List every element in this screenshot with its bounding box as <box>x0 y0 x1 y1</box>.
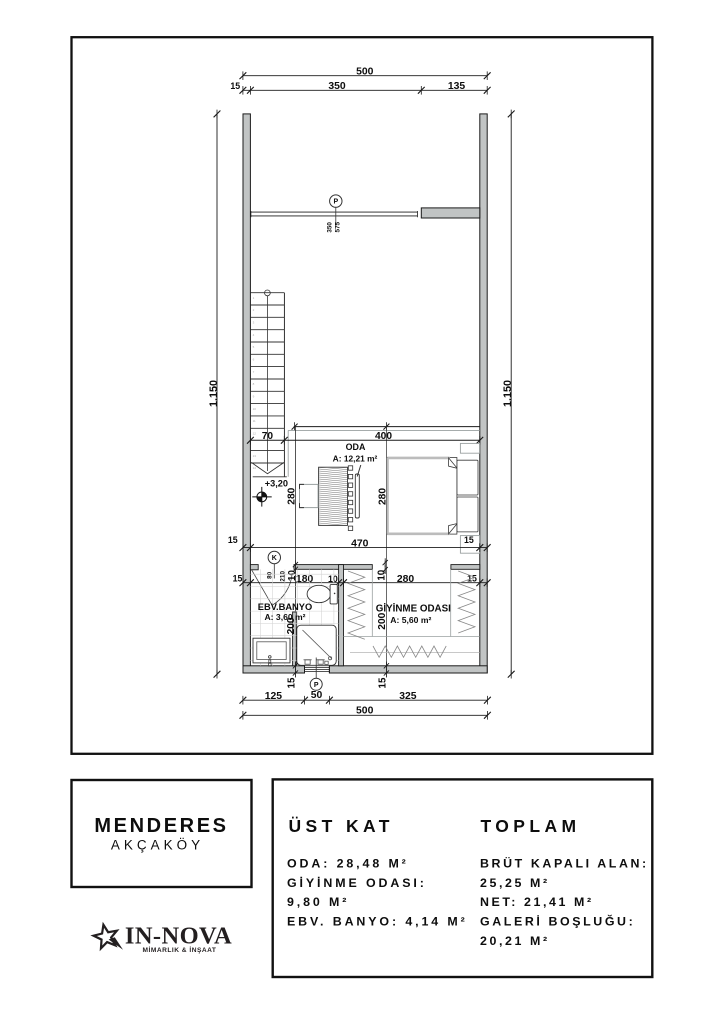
svg-text:10: 10 <box>377 569 388 580</box>
svg-text:1.150: 1.150 <box>208 380 220 407</box>
svg-text:70: 70 <box>262 431 274 442</box>
svg-text:180: 180 <box>296 574 314 585</box>
svg-text:NET: 21,41 M²: NET: 21,41 M² <box>480 895 594 909</box>
svg-text:15: 15 <box>233 574 243 584</box>
svg-text:AKÇAKÖY: AKÇAKÖY <box>111 838 204 853</box>
svg-text:EBV. BANYO: 4,14 M²: EBV. BANYO: 4,14 M² <box>287 915 468 929</box>
svg-text:400: 400 <box>375 431 392 442</box>
svg-text:15: 15 <box>230 81 240 91</box>
svg-text:280: 280 <box>286 487 297 504</box>
svg-text:11: 11 <box>253 419 256 423</box>
svg-text:A: 3,60 m²: A: 3,60 m² <box>264 612 305 622</box>
svg-text:13: 13 <box>253 454 257 458</box>
svg-text:210: 210 <box>280 571 287 582</box>
svg-text:EBV.BANYO: EBV.BANYO <box>258 602 312 612</box>
svg-text:+3,20: +3,20 <box>265 478 288 488</box>
svg-text:470: 470 <box>351 538 369 549</box>
svg-text:K: K <box>272 555 277 562</box>
svg-text:12: 12 <box>253 432 257 436</box>
svg-text:280: 280 <box>397 574 415 585</box>
svg-text:MİMARLIK & İNŞAAT: MİMARLIK & İNŞAAT <box>143 946 217 954</box>
svg-text:10: 10 <box>253 407 257 411</box>
svg-text:50: 50 <box>311 690 323 701</box>
svg-text:10: 10 <box>328 574 338 584</box>
svg-text:ODA: 28,48 M²: ODA: 28,48 M² <box>287 857 409 871</box>
svg-text:200: 200 <box>377 612 388 629</box>
svg-text:125: 125 <box>265 691 283 702</box>
svg-text:575: 575 <box>334 222 341 233</box>
svg-text:BRÜT KAPALI ALAN:: BRÜT KAPALI ALAN: <box>480 856 649 871</box>
svg-text:TOPLAM: TOPLAM <box>481 816 581 836</box>
svg-text:25,25 M²: 25,25 M² <box>480 876 550 890</box>
svg-text:ODA: ODA <box>346 442 366 452</box>
svg-text:20,21 M²: 20,21 M² <box>480 934 550 948</box>
svg-text:MENDERES: MENDERES <box>94 815 228 837</box>
svg-text:A: 12,21 m²: A: 12,21 m² <box>333 453 378 463</box>
svg-text:14: 14 <box>253 466 257 470</box>
svg-text:500: 500 <box>356 706 374 717</box>
svg-text:15: 15 <box>464 535 474 545</box>
svg-text:200: 200 <box>286 617 297 634</box>
svg-text:P: P <box>314 682 319 689</box>
svg-text:A: 5,60 m²: A: 5,60 m² <box>390 615 431 625</box>
svg-text:15: 15 <box>228 535 238 545</box>
svg-text:15: 15 <box>378 677 389 688</box>
svg-text:500: 500 <box>356 67 374 78</box>
svg-text:9,80 M²: 9,80 M² <box>287 895 349 909</box>
svg-text:ÜST KAT: ÜST KAT <box>289 816 394 836</box>
svg-text:15: 15 <box>286 677 297 688</box>
svg-text:GALERİ BOŞLUĞU:: GALERİ BOŞLUĞU: <box>480 914 635 929</box>
svg-text:350: 350 <box>327 222 334 233</box>
svg-text:135: 135 <box>448 81 466 92</box>
svg-text:P: P <box>333 199 338 206</box>
svg-text:GİYİNME ODASI:: GİYİNME ODASI: <box>287 875 427 890</box>
svg-text:GİYİNME ODASI: GİYİNME ODASI <box>376 604 451 615</box>
svg-text:80: 80 <box>266 571 273 579</box>
svg-text:325: 325 <box>399 691 417 702</box>
svg-text:350: 350 <box>328 81 346 92</box>
svg-text:IN-NOVA: IN-NOVA <box>125 923 232 950</box>
svg-text:1.150: 1.150 <box>502 380 514 407</box>
